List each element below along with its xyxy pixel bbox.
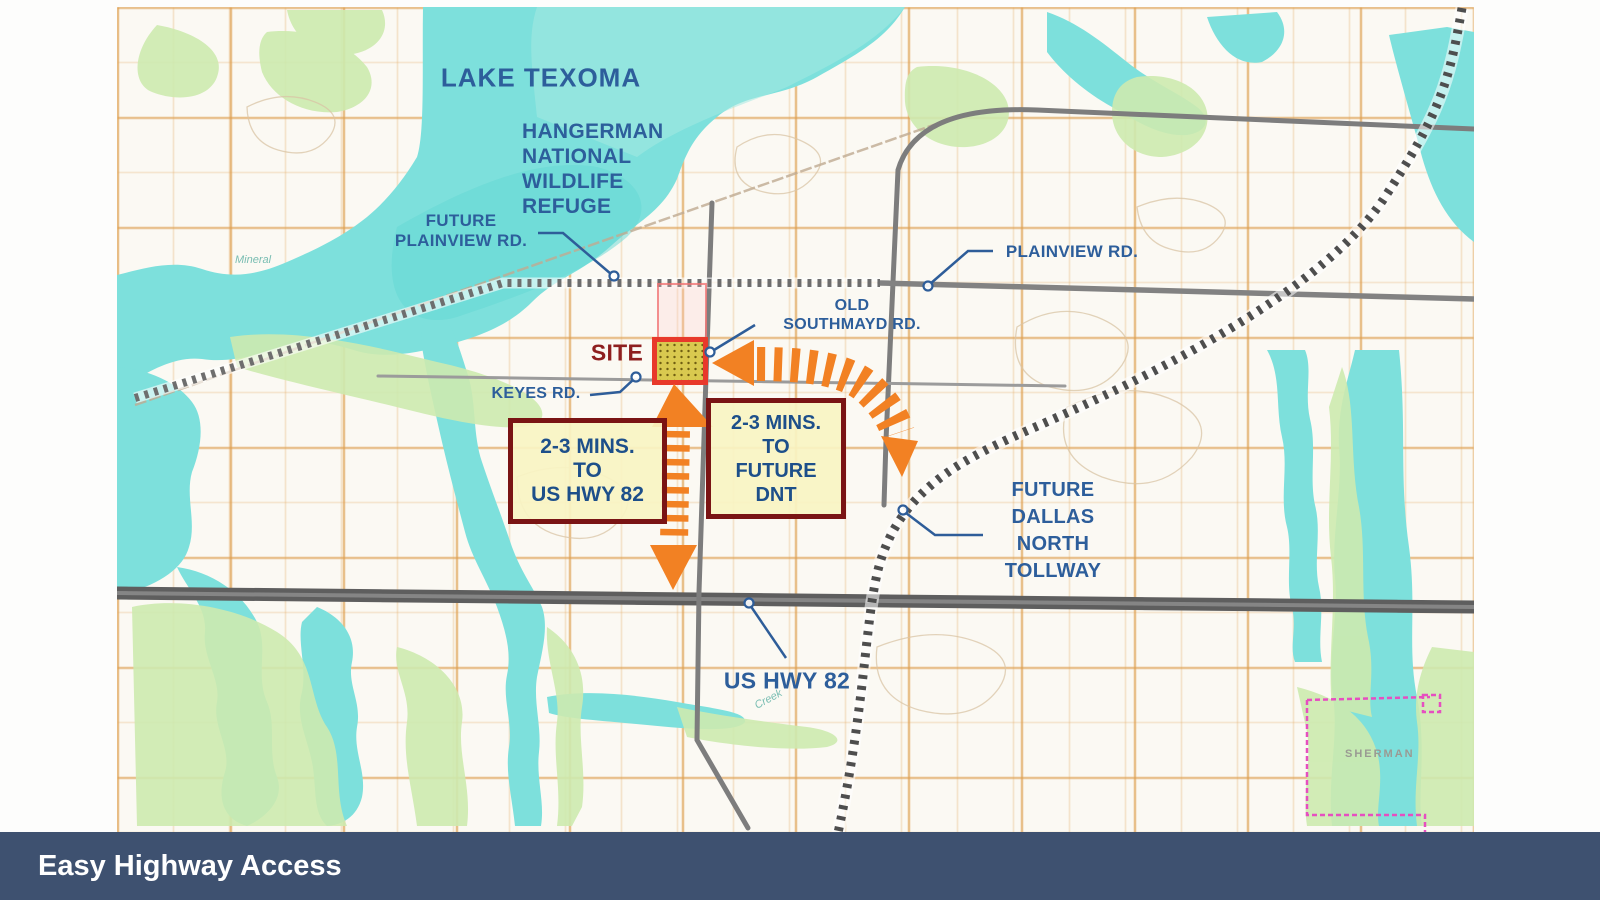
leader-plainview (930, 251, 993, 284)
banner-title: Easy Highway Access (38, 850, 342, 882)
leader-dnt (906, 513, 983, 535)
lake-texoma-label: LAKE TEXOMA (441, 63, 641, 94)
old-southmayd-label: OLD SOUTHMAYD RD. (783, 296, 921, 334)
future-plainview-label: FUTURE PLAINVIEW RD. (395, 211, 527, 251)
callout-dnt: 2-3 MINS. TO FUTURE DNT (706, 398, 846, 519)
plainview-label: PLAINVIEW RD. (1006, 242, 1138, 262)
leader-keyes (590, 379, 634, 395)
title-banner: Easy Highway Access (0, 832, 1600, 900)
future-dnt-label: FUTURE DALLAS NORTH TOLLWAY (1005, 477, 1102, 585)
slide: SHERMAN Creek Mineral (0, 0, 1600, 900)
callout-us82: 2-3 MINS. TO US HWY 82 (508, 418, 667, 524)
leader-us-hwy (750, 605, 786, 658)
keyes-label: KEYES RD. (492, 385, 581, 403)
us-hwy-82-label: US HWY 82 (724, 668, 850, 695)
topo-map: SHERMAN Creek Mineral (117, 7, 1474, 833)
leader-future-plainview (538, 233, 611, 274)
site-label: SITE (591, 340, 643, 367)
wildlife-refuge-label: HANGERMAN NATIONAL WILDLIFE REFUGE (522, 119, 664, 219)
